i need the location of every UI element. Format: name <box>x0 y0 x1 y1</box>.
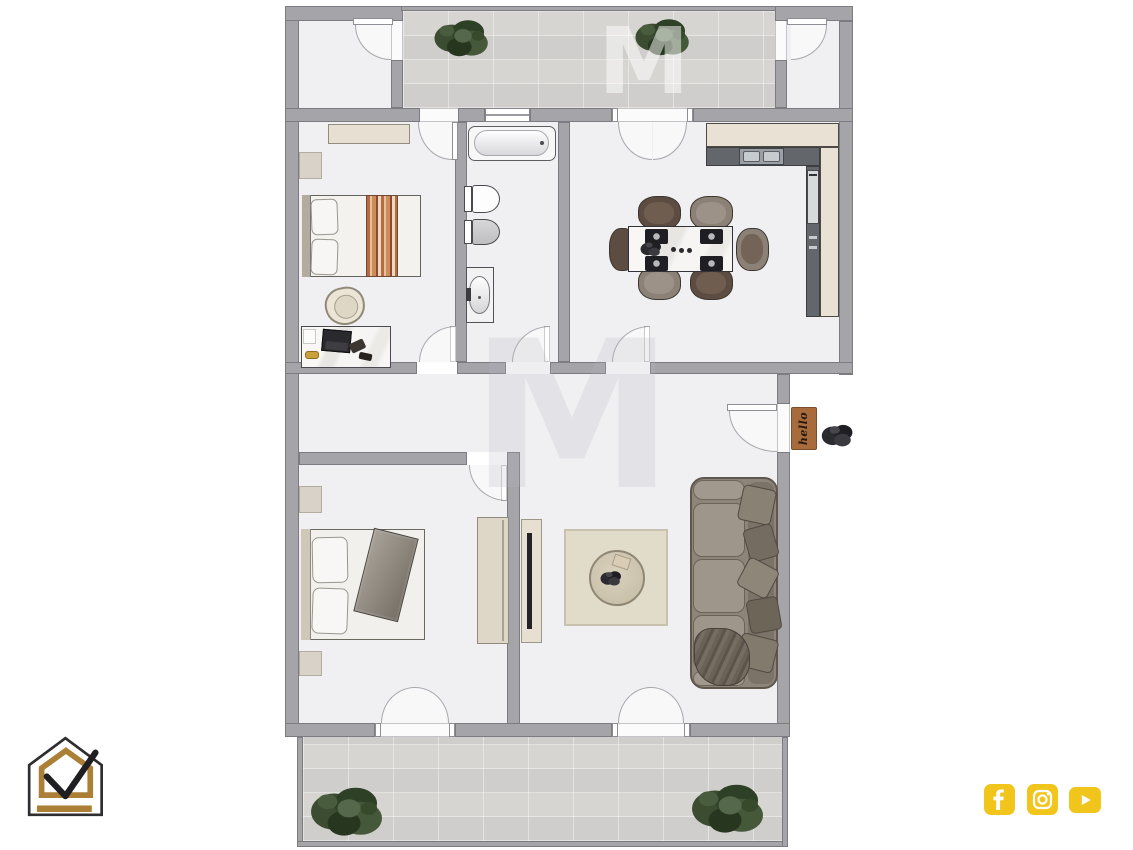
door-post <box>687 108 693 122</box>
bidet-tank <box>464 220 472 244</box>
wall-segment <box>285 108 420 122</box>
social-bar <box>984 784 1104 818</box>
pillow <box>312 537 349 584</box>
wardrobe <box>477 517 509 644</box>
brand-logo <box>24 733 112 821</box>
dining-chair-seat <box>741 234 763 264</box>
table-centerpiece-plant <box>638 233 666 264</box>
sink-basin <box>763 151 780 162</box>
door-leaf <box>353 18 393 25</box>
washbasin-drain <box>478 296 481 299</box>
instagram-icon[interactable] <box>1027 784 1058 815</box>
floor-plan-poster: hello M M <box>0 0 1133 850</box>
pillow <box>311 587 349 634</box>
bed-runner-blanket <box>366 195 398 277</box>
doormat: hello <box>791 407 817 450</box>
pillow <box>310 199 338 236</box>
wall-segment <box>690 723 790 737</box>
appliance-controls <box>809 246 817 249</box>
table-decor-dot <box>671 247 676 252</box>
potted-plant <box>305 777 393 843</box>
bathtub-basin <box>474 130 549 156</box>
dining-chair-seat <box>644 202 674 224</box>
wall-segment <box>391 60 403 108</box>
wall-segment <box>775 60 787 108</box>
house-check-logo-icon <box>24 733 112 821</box>
oven-handle <box>809 174 817 176</box>
sink-basin <box>743 151 760 162</box>
dining-chair <box>638 196 681 230</box>
laptop-keyboard <box>325 341 348 351</box>
table-decor-dot <box>687 248 692 253</box>
balcony-door-threshold <box>375 723 455 737</box>
bed-headboard <box>301 529 311 640</box>
bathtub-drain <box>540 141 544 145</box>
wall-segment <box>457 362 506 374</box>
doormat-text: hello <box>798 412 811 445</box>
gold-tray <box>305 351 319 359</box>
wall-segment <box>650 362 853 374</box>
door-leaf <box>452 122 458 160</box>
door-leaf <box>787 18 827 25</box>
washbasin-counter <box>466 267 494 323</box>
potted-plant <box>633 11 695 61</box>
oven <box>807 170 819 224</box>
sofa-pillow <box>745 595 782 634</box>
wall-segment <box>299 452 467 465</box>
bathtub <box>468 126 556 161</box>
dining-chair <box>736 228 769 271</box>
wall-niche <box>299 152 322 179</box>
door-opening <box>775 21 787 60</box>
wall-segment <box>558 122 570 362</box>
door-post <box>375 723 381 737</box>
washbasin-tap <box>466 288 471 301</box>
kitchen-counter-top <box>706 123 839 147</box>
bed-headboard <box>302 195 311 277</box>
door-opening <box>420 108 458 122</box>
dining-chair-seat <box>644 272 674 294</box>
sofa-arm <box>693 480 745 500</box>
wall-segment <box>455 723 612 737</box>
wall-segment <box>693 108 853 122</box>
wall-segment <box>458 108 485 122</box>
entrance-plant <box>818 410 860 460</box>
appliance-controls <box>809 236 817 239</box>
wall-segment <box>839 21 853 375</box>
balcony-door-threshold <box>612 723 690 737</box>
kitchen-sink <box>739 148 784 165</box>
sofa-seat-cushion <box>693 559 745 613</box>
youtube-icon[interactable] <box>1069 787 1101 813</box>
balcony-parapet <box>782 737 788 847</box>
washbasin-sink <box>469 276 490 314</box>
balcony-parapet <box>297 737 303 847</box>
balcony-door-threshold <box>612 108 693 122</box>
placemat <box>700 229 723 244</box>
door-post <box>612 108 618 122</box>
paper-sheet <box>303 329 316 344</box>
dining-chair-seat <box>696 272 726 294</box>
sofa-throw-blanket <box>694 628 750 686</box>
door-post <box>612 723 618 737</box>
shelf <box>328 124 410 144</box>
wall-niche <box>299 651 322 676</box>
toilet-tank <box>464 186 472 212</box>
table-decor-dot <box>679 248 684 253</box>
door-post <box>684 723 690 737</box>
door-opening <box>391 21 403 60</box>
dining-chair-seat <box>696 202 726 224</box>
facebook-icon[interactable] <box>984 784 1015 815</box>
balcony-railing <box>401 6 777 11</box>
armchair-seat <box>332 293 360 321</box>
bathroom-window <box>485 108 530 122</box>
kitchen-counter-right <box>820 147 839 317</box>
wall-segment <box>777 452 790 737</box>
dining-chair <box>690 196 733 230</box>
entrance-threshold <box>777 404 790 452</box>
placemat <box>700 256 723 271</box>
wall-segment <box>777 374 790 404</box>
wall-segment <box>285 723 375 737</box>
wall-segment <box>530 108 612 122</box>
wall-segment <box>550 362 606 374</box>
coffee-table-plant <box>598 565 626 591</box>
door-post <box>449 723 455 737</box>
pillow <box>310 239 338 276</box>
wall-niche <box>299 486 322 513</box>
entrance-door-leaf <box>727 404 777 411</box>
potted-plant <box>688 774 772 840</box>
tv <box>527 533 532 629</box>
laptop <box>321 329 352 353</box>
wardrobe-door-line <box>502 520 504 641</box>
potted-plant <box>432 12 494 62</box>
